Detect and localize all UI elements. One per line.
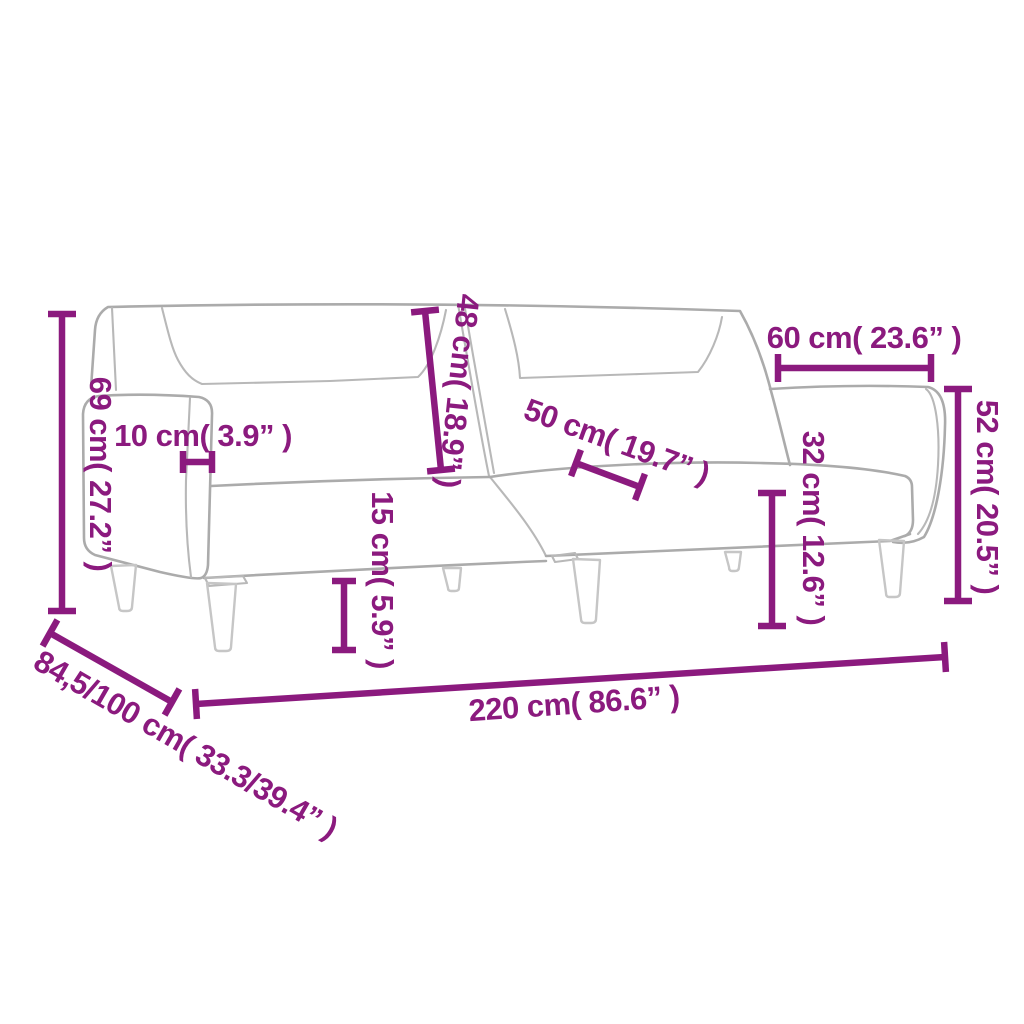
leg-front-left bbox=[111, 565, 136, 611]
dimension-end-cap bbox=[411, 310, 439, 313]
dim-label-backrest-height: 48 cm( 18.9” ) bbox=[431, 292, 486, 489]
leg-front-right bbox=[879, 540, 904, 597]
leg-front-left-center bbox=[207, 583, 236, 651]
leg-rear-right bbox=[725, 552, 741, 571]
diagram-canvas: 69 cm( 27.2” ) 10 cm( 3.9” ) 48 cm( 18.9… bbox=[0, 0, 1024, 1024]
backrest-left-inset bbox=[162, 308, 446, 384]
dim-label-right-section-height: 52 cm( 20.5” ) bbox=[970, 400, 1005, 595]
dim-label-leg-height: 15 cm( 5.9” ) bbox=[365, 491, 400, 669]
dim-label-right-section-width: 60 cm( 23.6” ) bbox=[767, 320, 962, 355]
dimension-labels: 69 cm( 27.2” ) 10 cm( 3.9” ) 48 cm( 18.9… bbox=[28, 292, 1005, 845]
dimension-end-cap bbox=[195, 689, 197, 719]
dim-label-armrest-width: 10 cm( 3.9” ) bbox=[114, 418, 292, 453]
dimension-end-cap bbox=[635, 474, 645, 500]
sofa-legs bbox=[111, 540, 904, 651]
dim-label-total-height: 69 cm( 27.2” ) bbox=[83, 377, 118, 572]
seat-split-seam bbox=[490, 477, 546, 556]
leg-rear-middle-left bbox=[443, 568, 461, 591]
dimension-end-cap bbox=[944, 642, 946, 672]
dimension-arrows bbox=[43, 310, 972, 719]
sofa-dimension-diagram: 69 cm( 27.2” ) 10 cm( 3.9” ) 48 cm( 18.9… bbox=[0, 0, 1024, 1024]
leg-front-middle bbox=[573, 559, 600, 623]
dimension-end-cap bbox=[571, 450, 581, 476]
dim-label-seat-height: 32 cm( 12.6” ) bbox=[796, 431, 831, 626]
right-section-seam bbox=[918, 389, 939, 534]
dim-label-depth-range: 84,5/100 cm( 33.3/39.4” ) bbox=[28, 643, 344, 845]
backrest-right-inset bbox=[505, 309, 722, 378]
